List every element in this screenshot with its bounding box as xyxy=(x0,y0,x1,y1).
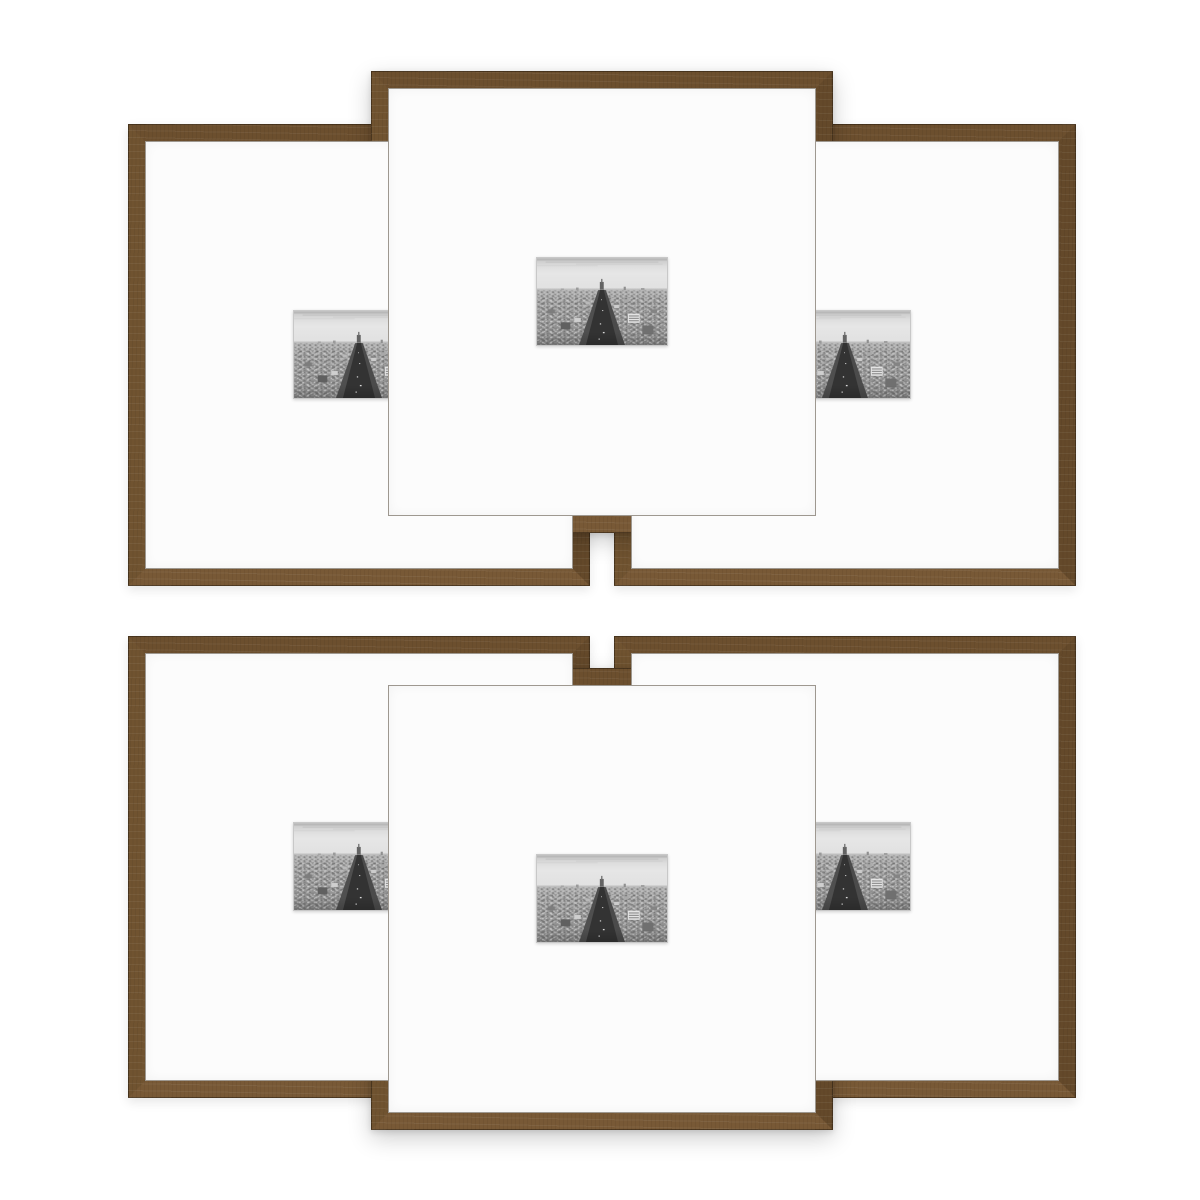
picture-frame xyxy=(371,71,833,533)
paris-photo xyxy=(536,854,668,943)
paris-photo xyxy=(536,257,668,346)
product-image xyxy=(0,0,1200,1200)
mat-board xyxy=(388,88,816,516)
mat-board xyxy=(388,685,816,1113)
picture-frame xyxy=(371,668,833,1130)
